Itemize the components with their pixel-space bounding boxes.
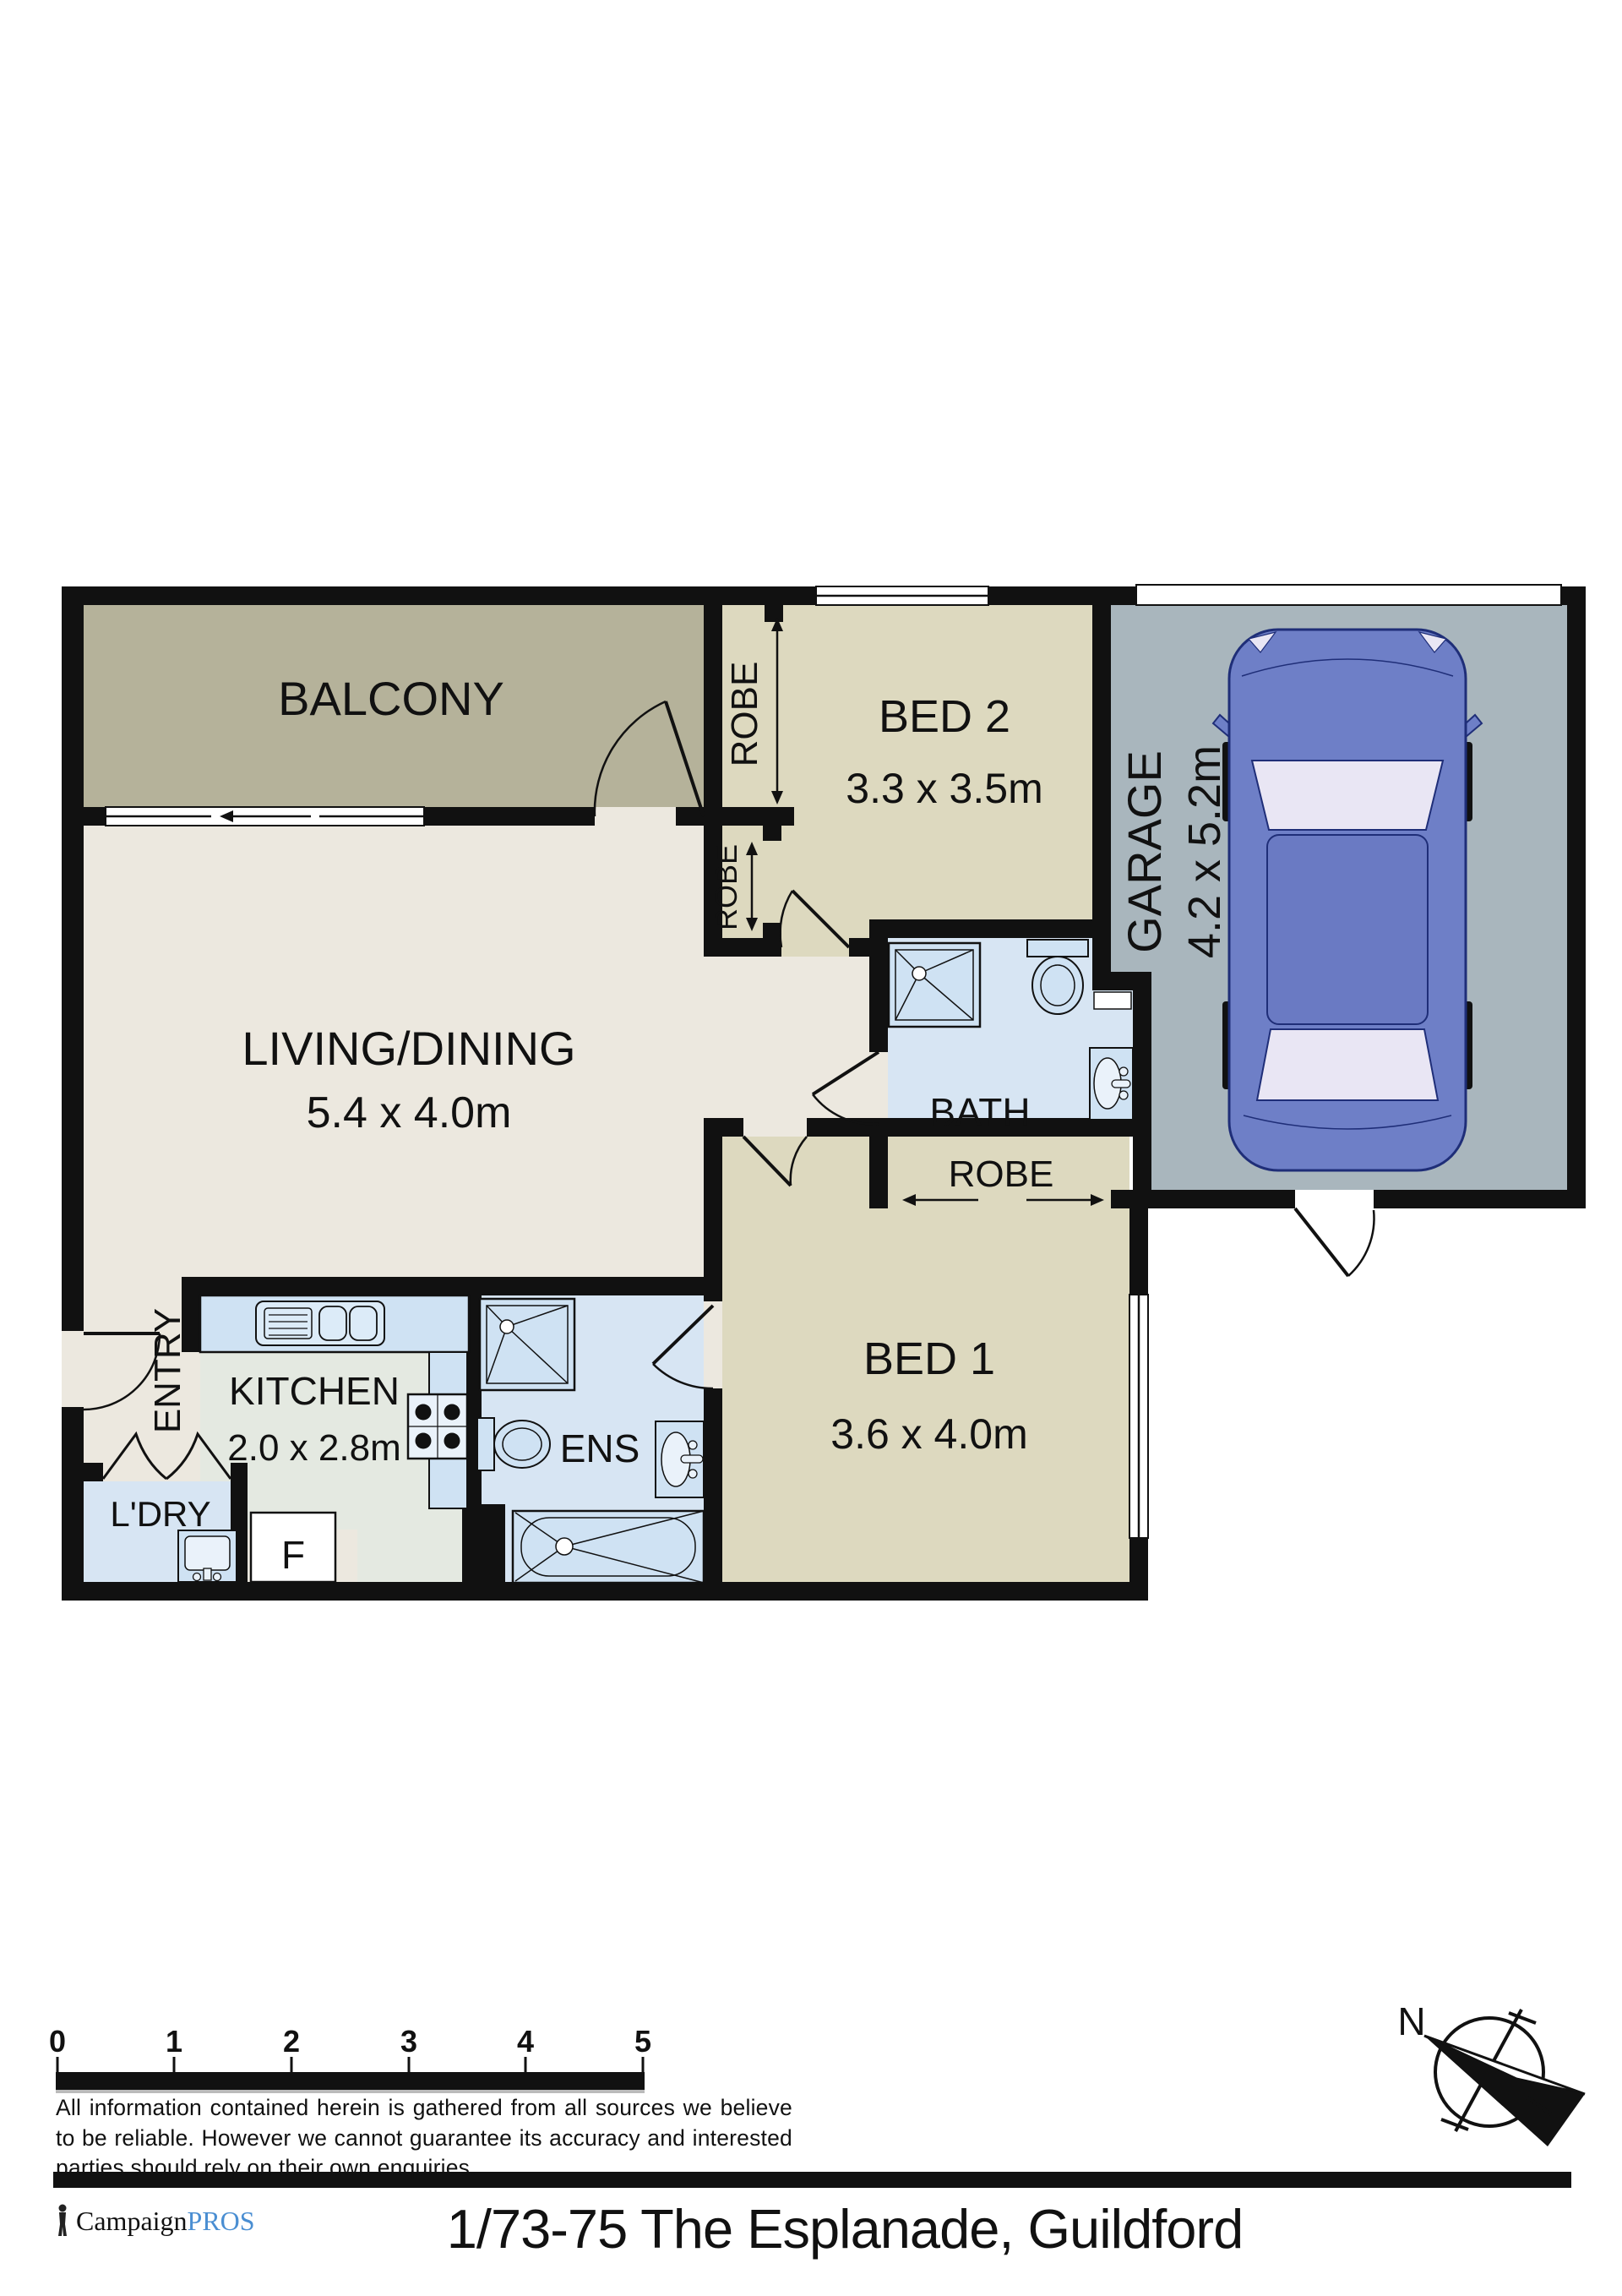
compass-icon: N [1397,1999,1585,2146]
laundry-label: L'DRY [110,1494,210,1534]
ens-shower-icon [480,1299,574,1390]
ens-toilet-icon [477,1418,550,1470]
brand-figure-icon [54,2204,73,2238]
compass-north-label: N [1397,1999,1425,2043]
robe-bed1-label: ROBE [949,1153,1054,1195]
scale-tick-5: 5 [634,2024,651,2059]
cooktop-icon [408,1394,467,1459]
garage-dims: 4.2 x 5.2m [1179,745,1230,958]
ens-basin-icon [656,1421,704,1497]
living-dims: 5.4 x 4.0m [307,1088,512,1137]
bathtub-icon [513,1511,704,1583]
bath-recess [1094,992,1131,1009]
laundry-tub-icon [178,1530,237,1582]
kitchen-dims: 2.0 x 2.8m [227,1427,400,1469]
floorplan-page: BALCONY LIVING/DINING 5.4 x 4.0m BED 2 3… [0,0,1622,2296]
fridge-label: F [281,1533,305,1577]
car-icon [1213,630,1482,1170]
kitchen-label: KITCHEN [229,1369,400,1413]
garage-roller-door [1136,585,1561,605]
ens-label: ENS [560,1426,640,1470]
scale-bar-band [56,2072,645,2090]
bed2-label: BED 2 [879,691,1010,742]
brand-name: Campaign [76,2206,188,2236]
scale-tick-4: 4 [517,2024,534,2059]
address-title: 1/73-75 The Esplanade, Guildford [220,2197,1470,2261]
scale-tick-3: 3 [400,2024,417,2059]
garage-label: GARAGE [1118,750,1171,953]
balcony-label: BALCONY [278,672,504,725]
scale-bar: 0 1 2 3 4 5 [49,2024,651,2093]
entry-label: ENTRY [147,1308,188,1433]
bed1-dims: 3.6 x 4.0m [830,1410,1027,1458]
bath-shower-icon [889,943,980,1027]
scale-tick-1: 1 [166,2024,182,2059]
floorplan-drawing: BALCONY LIVING/DINING 5.4 x 4.0m BED 2 3… [0,0,1622,2296]
garage-door-swing [1295,1208,1374,1276]
balcony-door-opening [595,807,676,826]
scale-tick-0: 0 [49,2024,66,2059]
robe-bed2-main-label: ROBE [724,662,765,767]
bed1-label: BED 1 [863,1333,995,1384]
robe-bed2-second-label: ROBE [709,844,743,930]
entry-door-opening [62,1331,84,1407]
kitchen-sink-icon [256,1301,384,1345]
scale-tick-2: 2 [283,2024,300,2059]
bath-basin-icon [1090,1048,1133,1120]
living-label: LIVING/DINING [242,1022,575,1075]
bath-label: BATH [929,1090,1030,1134]
disclaimer-text: All information contained herein is gath… [56,2093,792,2184]
kitchen-floor-column [357,1530,463,1582]
bed2-dims: 3.3 x 3.5m [846,765,1042,812]
